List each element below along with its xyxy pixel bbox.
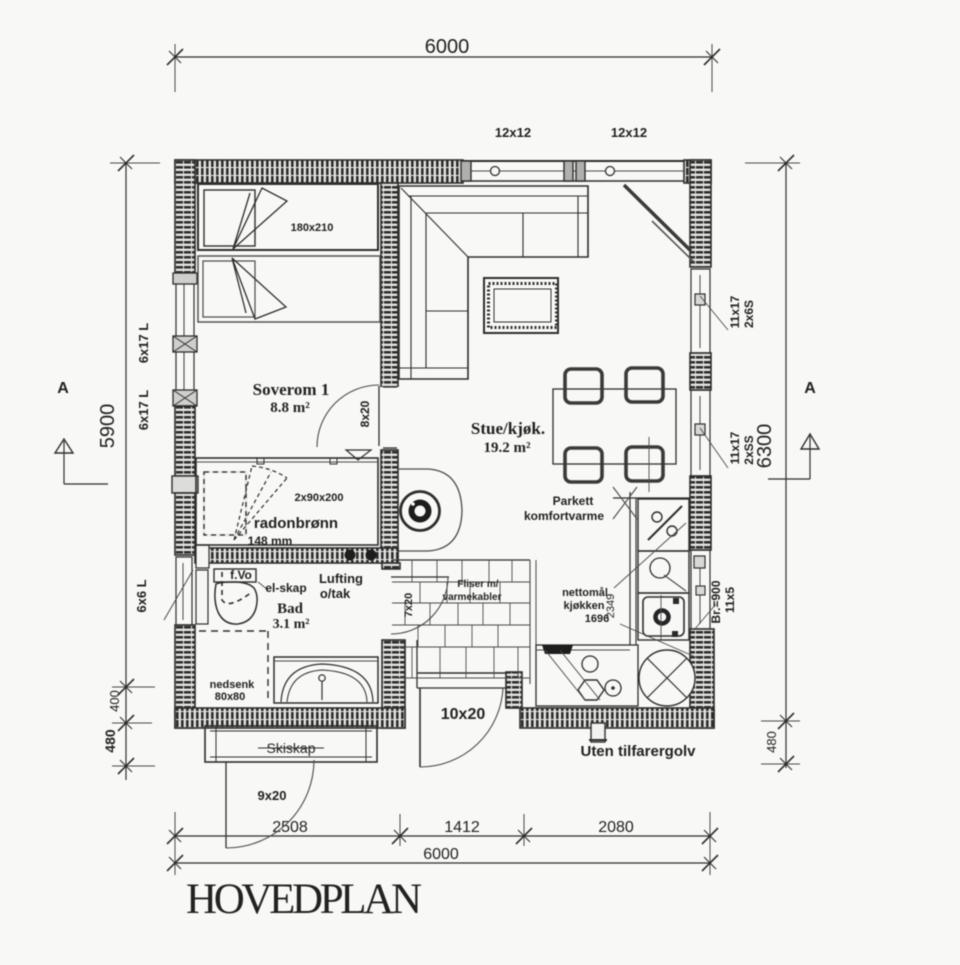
svg-text:o/tak: o/tak [320, 586, 351, 601]
svg-text:nettomål: nettomål [562, 587, 608, 599]
svg-text:2xSS: 2xSS [742, 435, 756, 464]
svg-text:480: 480 [102, 729, 118, 753]
svg-text:Stue/kjøk.: Stue/kjøk. [471, 419, 545, 438]
svg-text:el-skap: el-skap [265, 581, 306, 595]
svg-text:6x17 L: 6x17 L [136, 390, 151, 431]
svg-text:radonbrønn: radonbrønn [254, 515, 338, 532]
svg-text:Lufting: Lufting [319, 571, 363, 586]
svg-text:1412: 1412 [444, 819, 480, 836]
svg-text:6000: 6000 [423, 846, 459, 863]
svg-text:8x20: 8x20 [358, 400, 372, 427]
svg-text:7x20: 7x20 [403, 593, 415, 617]
svg-text:480: 480 [764, 731, 779, 753]
svg-text:nedsenk: nedsenk [210, 679, 256, 691]
svg-text:Br.=900: Br.=900 [709, 580, 723, 623]
svg-text:10x20: 10x20 [441, 706, 486, 723]
svg-text:11x17: 11x17 [728, 431, 742, 464]
svg-text:148 mm: 148 mm [248, 534, 293, 548]
svg-text:400: 400 [107, 690, 122, 712]
svg-text:180x210: 180x210 [291, 222, 334, 234]
svg-text:2349: 2349 [605, 594, 617, 618]
svg-text:5900: 5900 [97, 404, 119, 449]
svg-text:kjøkken: kjøkken [564, 600, 605, 612]
svg-text:9x20: 9x20 [258, 788, 287, 803]
svg-text:6300: 6300 [754, 424, 776, 469]
svg-text:11x17: 11x17 [728, 295, 742, 328]
svg-text:A: A [804, 380, 816, 397]
svg-text:6x17 L: 6x17 L [136, 323, 151, 364]
svg-text:6x6 L: 6x6 L [134, 579, 149, 612]
svg-text:2080: 2080 [598, 819, 634, 836]
svg-text:2508: 2508 [272, 819, 308, 836]
svg-text:Uten tilfarergolv: Uten tilfarergolv [580, 743, 696, 760]
svg-text:Soverom 1: Soverom 1 [253, 380, 330, 399]
svg-text:Fliser m/: Fliser m/ [457, 579, 498, 590]
svg-text:Parkett: Parkett [553, 494, 594, 508]
svg-text:8.8 m²: 8.8 m² [270, 400, 310, 416]
svg-text:f.Vo: f.Vo [230, 568, 252, 582]
svg-text:80x80: 80x80 [215, 691, 246, 703]
svg-text:2x90x200: 2x90x200 [295, 492, 344, 504]
svg-text:19.2 m²: 19.2 m² [484, 440, 531, 456]
svg-text:3.1 m²: 3.1 m² [273, 617, 310, 632]
svg-text:HOVEDPLAN: HOVEDPLAN [186, 876, 422, 923]
svg-text:6000: 6000 [425, 36, 470, 58]
svg-text:11x5: 11x5 [723, 587, 737, 613]
svg-text:varmekabler: varmekabler [443, 592, 502, 603]
svg-text:12x12: 12x12 [495, 125, 531, 140]
svg-text:komfortvarme: komfortvarme [524, 509, 604, 523]
svg-text:Bad: Bad [277, 601, 304, 617]
svg-text:12x12: 12x12 [611, 125, 647, 140]
svg-text:A: A [57, 380, 69, 397]
svg-text:2x6S: 2x6S [742, 300, 756, 328]
